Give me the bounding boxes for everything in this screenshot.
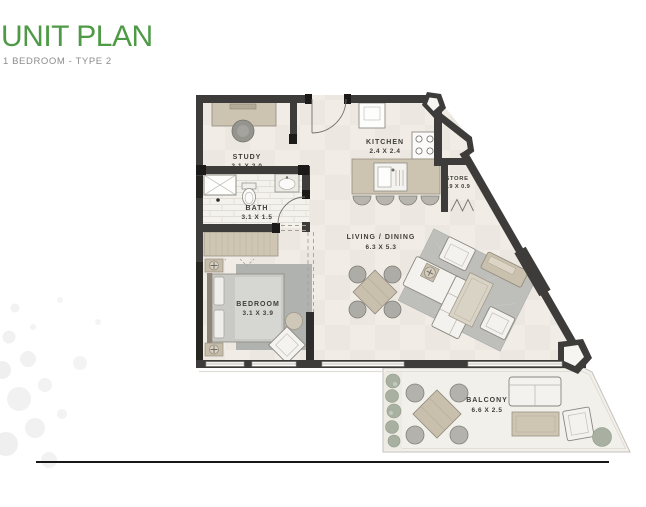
windows: [206, 362, 562, 367]
balcony-coffee-table: [512, 412, 559, 436]
unit-plan-page: UNIT PLAN 1 BEDROOM - TYPE 2: [0, 0, 646, 507]
balcony-sofa: [509, 377, 561, 406]
bath-sink: [275, 174, 299, 192]
desk-monitor: [230, 104, 256, 109]
bottom-divider-rule: [36, 461, 609, 463]
wall-bath-bedroom: [196, 224, 280, 232]
pillow: [214, 277, 224, 305]
label-balcony: BALCONY: [466, 397, 508, 404]
nightstand-bottom: [205, 343, 223, 356]
label-bedroom: BEDROOM: [236, 301, 280, 308]
balcony-dining-set: [406, 384, 468, 444]
bedroom-pouf: [286, 313, 303, 330]
label-store: STORE: [445, 176, 468, 182]
wall-dark-left-bath: [196, 176, 203, 198]
floor-plan-svg: STUDY 3.1 X 2.0 KITCHEN 2.4 X 2.4 STORE …: [0, 0, 646, 507]
wall-bedroom-right: [306, 312, 314, 368]
toilet: [242, 183, 256, 206]
stove: [412, 132, 436, 159]
label-study-dims: 3.1 X 2.0: [232, 163, 263, 170]
study-chair-seat: [237, 125, 249, 137]
balcony-plant: [593, 428, 612, 447]
dining-set: [349, 266, 401, 318]
label-study: STUDY: [233, 154, 262, 161]
nightstand-top: [205, 259, 223, 272]
background-dots-pattern: [0, 297, 101, 468]
room-balcony: [383, 368, 630, 452]
wall-top-right: [348, 95, 432, 103]
kitchen-sink: [374, 163, 407, 191]
balcony-chair: [562, 407, 594, 441]
wall-dark-left-bedroom: [196, 262, 203, 360]
floor-plan: STUDY 3.1 X 2.0 KITCHEN 2.4 X 2.4 STORE …: [196, 92, 630, 452]
label-bath: BATH: [246, 205, 269, 212]
label-bedroom-dims: 3.1 X 3.9: [243, 310, 274, 317]
label-living-dining: LIVING / DINING: [347, 234, 416, 241]
label-living-dining-dims: 6.3 X 5.3: [366, 244, 397, 251]
label-bath-dims: 3.1 X 1.5: [242, 214, 273, 221]
label-balcony-dims: 6.6 X 2.5: [472, 407, 503, 414]
label-kitchen-dims: 2.4 X 2.4: [370, 148, 401, 155]
bed: [207, 273, 284, 343]
label-kitchen: KITCHEN: [366, 139, 404, 146]
pillow: [214, 310, 224, 338]
label-store-dims: 0.9 X 0.9: [444, 184, 470, 190]
